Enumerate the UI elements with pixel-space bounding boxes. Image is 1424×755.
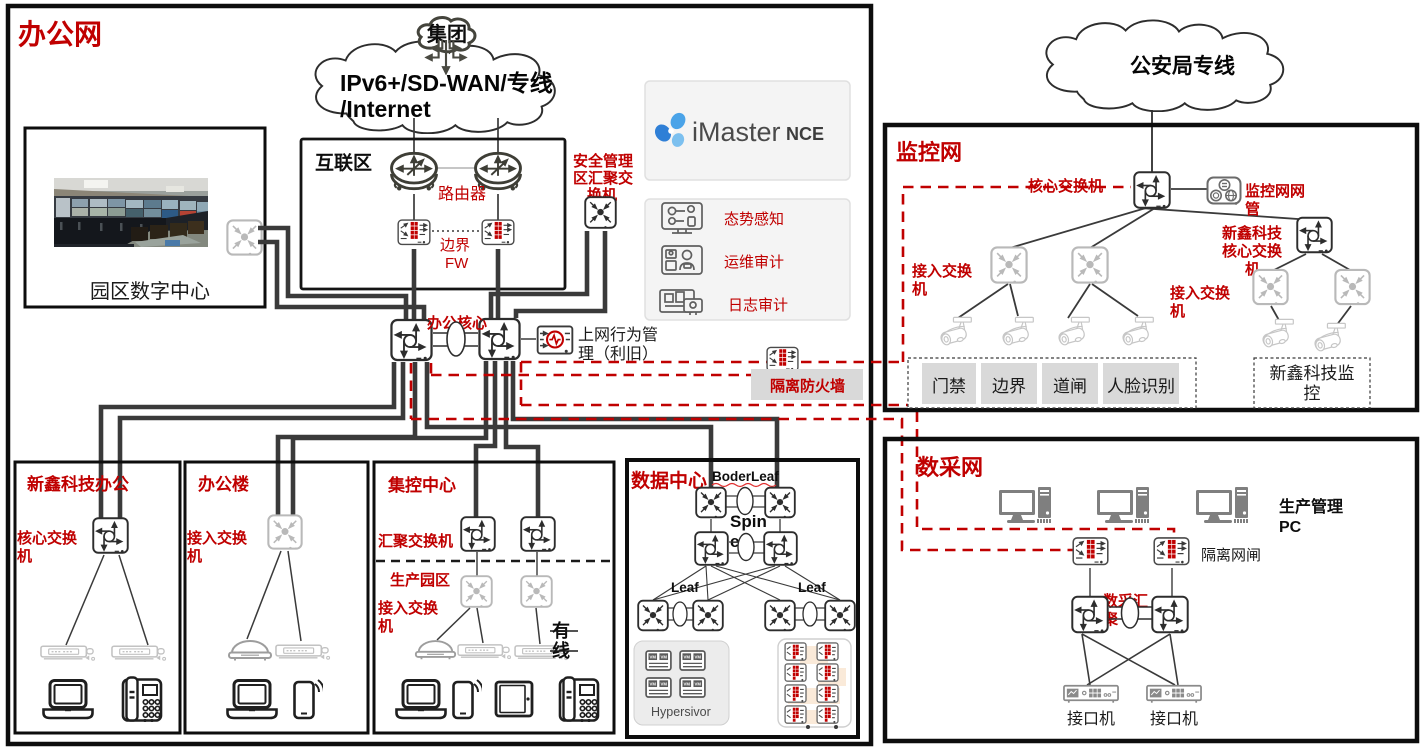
svg-text:机: 机 [912, 280, 927, 298]
svg-text:核心交换: 核心交换 [1222, 242, 1283, 260]
svg-text:Spin: Spin [730, 512, 767, 531]
svg-text:接入交换: 接入交换 [912, 262, 973, 280]
svg-text:安全管理: 安全管理 [573, 152, 633, 170]
svg-text:运维审计: 运维审计 [724, 254, 784, 271]
svg-text:园区数字中心: 园区数字中心 [90, 280, 210, 303]
svg-text:生产园区: 生产园区 [390, 571, 450, 589]
svg-text:机: 机 [378, 617, 393, 635]
svg-text:新鑫科技: 新鑫科技 [1222, 224, 1283, 242]
svg-text:BoderLeaf: BoderLeaf [712, 469, 779, 484]
svg-text:核心交换: 核心交换 [17, 529, 78, 547]
svg-text:机: 机 [187, 547, 202, 565]
svg-text:核心交换机: 核心交换机 [1028, 177, 1103, 195]
svg-text:日志审计: 日志审计 [728, 297, 788, 314]
svg-text:控: 控 [1304, 384, 1321, 403]
svg-text:集控中心: 集控中心 [387, 475, 456, 495]
svg-text:边界: 边界 [992, 377, 1026, 396]
svg-text:理（利旧）: 理（利旧） [578, 345, 658, 363]
svg-text:Leaf: Leaf [798, 580, 826, 595]
svg-text:接入交换: 接入交换 [1170, 284, 1231, 302]
svg-text:区汇聚交: 区汇聚交 [573, 169, 633, 187]
svg-text:路由器: 路由器 [438, 185, 486, 203]
svg-text:PC: PC [1279, 519, 1302, 536]
svg-text:汇聚交换机: 汇聚交换机 [378, 532, 453, 550]
svg-text:接口机: 接口机 [1150, 710, 1198, 728]
svg-text:办公网: 办公网 [18, 19, 102, 50]
svg-text:态势感知: 态势感知 [724, 211, 784, 228]
svg-text:Hypersivor: Hypersivor [651, 705, 711, 719]
svg-text:互联区: 互联区 [315, 152, 372, 174]
svg-text:边界: 边界 [440, 237, 470, 254]
svg-text:监控网网: 监控网网 [1245, 182, 1305, 200]
svg-text:管: 管 [1245, 200, 1260, 218]
svg-text:人脸识别: 人脸识别 [1107, 377, 1175, 396]
svg-text:机: 机 [1170, 302, 1185, 320]
svg-text:数据中心: 数据中心 [631, 469, 707, 492]
svg-text:生产管理: 生产管理 [1279, 497, 1343, 516]
svg-text:隔离网闸: 隔离网闸 [1201, 547, 1261, 564]
svg-text:接口机: 接口机 [1067, 710, 1115, 728]
svg-text:数采网: 数采网 [917, 455, 983, 480]
svg-text:门禁: 门禁 [932, 377, 966, 396]
svg-text:接入交换: 接入交换 [378, 599, 439, 617]
svg-text:iMaster: iMaster [692, 117, 781, 147]
svg-text:新鑫科技办公: 新鑫科技办公 [27, 474, 129, 494]
svg-text:/Internet: /Internet [340, 96, 431, 122]
svg-text:公安局专线: 公安局专线 [1130, 54, 1235, 78]
svg-text:新鑫科技监: 新鑫科技监 [1270, 364, 1355, 383]
svg-text:隔离防火墙: 隔离防火墙 [770, 377, 845, 395]
svg-text:NCE: NCE [786, 124, 824, 144]
svg-text:监控网: 监控网 [896, 140, 962, 165]
svg-text:办公楼: 办公楼 [198, 474, 249, 494]
svg-text:Leaf: Leaf [671, 580, 699, 595]
svg-text:机: 机 [17, 547, 32, 565]
svg-text:道闸: 道闸 [1053, 377, 1087, 396]
svg-text:FW: FW [445, 255, 469, 272]
svg-text:接入交换: 接入交换 [187, 529, 248, 547]
svg-text:上网行为管: 上网行为管 [578, 326, 658, 344]
